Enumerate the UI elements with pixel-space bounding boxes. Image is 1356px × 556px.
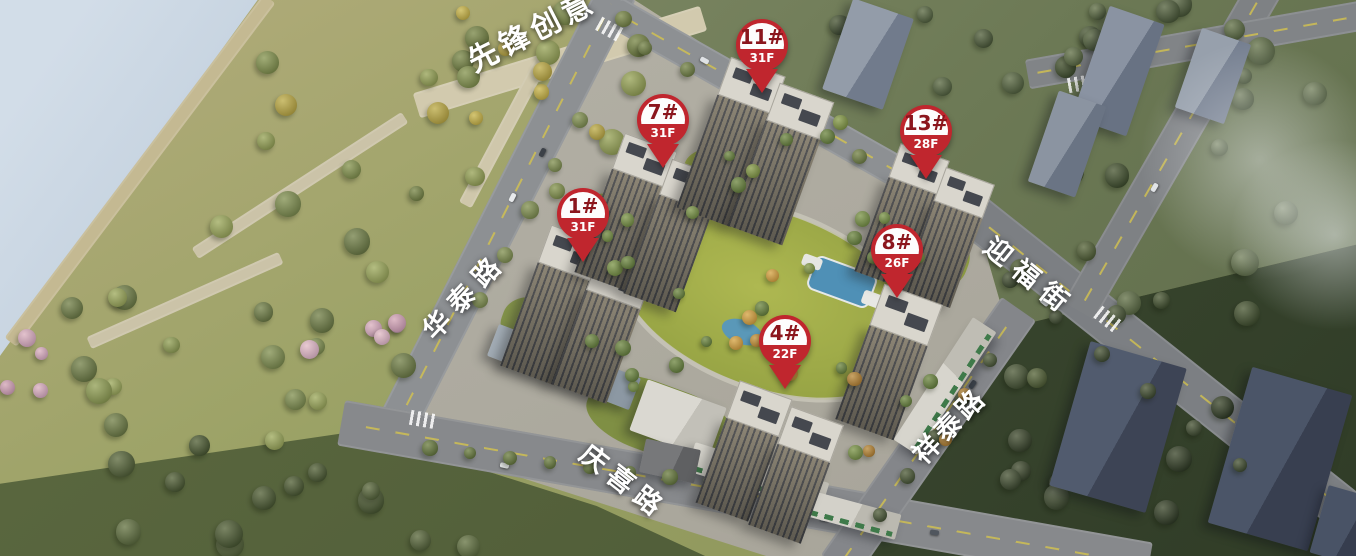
building-number: 13# (898, 113, 954, 133)
tree (847, 231, 861, 245)
street-tree (548, 158, 562, 172)
building-number: 4# (757, 323, 813, 343)
tree (1247, 37, 1275, 65)
rooftop-unit (792, 416, 813, 433)
tree (585, 334, 599, 348)
marker-tail (647, 144, 679, 168)
tree (391, 353, 416, 378)
tree (308, 463, 327, 482)
tree (863, 445, 874, 456)
tree (766, 269, 779, 282)
building-floor-count: 26F (869, 257, 925, 269)
rooftop-unit (757, 406, 779, 424)
tree (163, 337, 180, 354)
tree (104, 413, 128, 437)
tree (457, 535, 480, 556)
street-tree (873, 508, 887, 522)
tree (86, 378, 112, 404)
aerial-masterplan-view: 先锋创意 华泰路 庆喜路 祥泰路 迎福街 1#31F4#22F7#31F8#26… (0, 0, 1356, 556)
tree (731, 177, 746, 192)
tree (686, 206, 699, 219)
marker-tail (910, 155, 942, 179)
marker-tail (567, 238, 599, 262)
tree (1000, 469, 1021, 490)
tree (780, 133, 793, 146)
building-floor-count: 31F (555, 221, 611, 233)
tree (1303, 82, 1326, 105)
tree (465, 167, 485, 187)
tree (1008, 429, 1031, 452)
tree (275, 191, 301, 217)
building-floor-count: 22F (757, 348, 813, 360)
building-floor-count: 31F (734, 52, 790, 64)
building-number: 7# (635, 102, 691, 122)
tree (847, 372, 861, 386)
tree (615, 340, 631, 356)
building-marker-7[interactable]: 7#31F (635, 92, 691, 172)
tree (534, 84, 549, 99)
marker-tail (881, 274, 913, 298)
tree (724, 151, 734, 161)
tree (1231, 249, 1259, 277)
rooftop-unit (904, 312, 929, 332)
tree (210, 215, 233, 238)
tree (615, 11, 631, 27)
building-number: 11# (734, 27, 790, 47)
tree (366, 261, 389, 284)
tree (189, 435, 210, 456)
tree (900, 395, 912, 407)
tree (116, 519, 142, 545)
street-tree (662, 469, 677, 484)
street-tree (521, 201, 538, 218)
tree (833, 115, 847, 129)
building-floor-count: 28F (898, 138, 954, 150)
marker-tail (746, 69, 778, 93)
street-tree (464, 447, 476, 459)
tree (388, 314, 406, 332)
street-tree (422, 440, 437, 455)
tree (1211, 139, 1228, 156)
tree (310, 308, 335, 333)
street-tree (572, 112, 588, 128)
tree (285, 389, 306, 410)
tree (284, 476, 304, 496)
tree (804, 263, 815, 274)
tree (300, 340, 319, 359)
tree (746, 164, 759, 177)
tree (18, 329, 36, 347)
tree (1089, 3, 1106, 20)
tree (254, 302, 274, 322)
tree (1232, 88, 1253, 109)
tree (33, 383, 48, 398)
tree (669, 357, 685, 373)
building-marker-1[interactable]: 1#31F (555, 186, 611, 266)
marker-tail (769, 365, 801, 389)
rooftop-unit (962, 191, 983, 207)
building-marker-8[interactable]: 8#26F (869, 222, 925, 302)
tree (342, 160, 361, 179)
tree (729, 336, 743, 350)
tree (742, 310, 757, 325)
street-tree (983, 353, 997, 367)
tree (344, 228, 370, 254)
tree (1153, 292, 1169, 308)
tree (1156, 0, 1180, 23)
tree (1154, 500, 1179, 525)
rooftop-unit (798, 109, 821, 127)
building-floor-count: 31F (635, 127, 691, 139)
tree (165, 472, 185, 492)
street-tree (1140, 383, 1156, 399)
tree (923, 374, 938, 389)
tree (1064, 47, 1083, 66)
tree (35, 347, 48, 360)
building-number: 1# (555, 196, 611, 216)
tree (256, 51, 279, 74)
tree (1105, 163, 1130, 188)
building-marker-4[interactable]: 4#22F (757, 313, 813, 393)
building-number: 8# (869, 232, 925, 252)
building-marker-13[interactable]: 13#28F (898, 103, 954, 183)
tree (265, 431, 283, 449)
street-tree (1233, 458, 1247, 472)
tree (820, 129, 835, 144)
street-tree (503, 451, 517, 465)
tree (71, 356, 97, 382)
tree (933, 77, 952, 96)
car (930, 529, 940, 535)
tree (1027, 368, 1047, 388)
tree (409, 186, 424, 201)
tree (621, 213, 635, 227)
tree (917, 6, 933, 22)
tree (1234, 301, 1259, 326)
rooftop-unit (809, 432, 831, 450)
building-marker-11[interactable]: 11#31F (734, 17, 790, 97)
